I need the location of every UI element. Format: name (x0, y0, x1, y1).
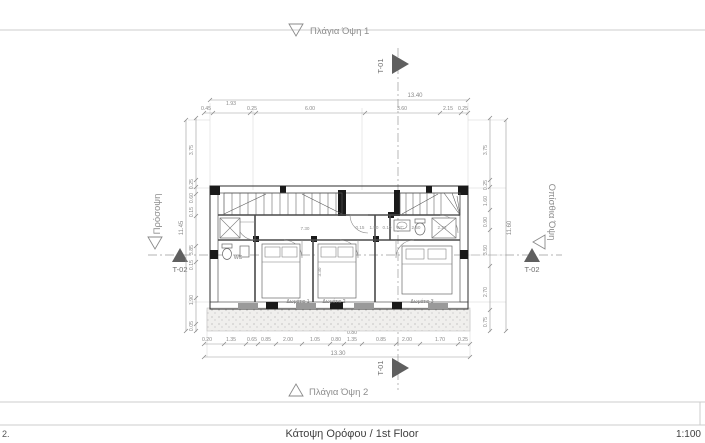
dim-int-6: 3.30 (317, 267, 322, 276)
floor-plan: 7.30 0.15 1.50 0.10 WC 2.50 2.23 3.30 Δω… (207, 186, 470, 331)
dim-right-5: 2.70 (483, 287, 489, 297)
bed-bedroom1 (262, 244, 300, 298)
section-label-t02-right: T-02 (524, 265, 539, 274)
dim-right-0: 3.75 (483, 145, 489, 155)
title-block: 2. Κάτοψη Ορόφου / 1st Floor 1:100 (2, 428, 701, 440)
dim-left-3: 0.15 (189, 207, 195, 217)
dim-int-2: 1.50 (370, 225, 379, 230)
dim-top-5: 2.15 (443, 106, 453, 112)
dim-top-6: 0.25 (458, 106, 468, 112)
section-arrow-t01-top-icon (392, 54, 409, 74)
floor-plan-sheet: Πλάγια Όψη 1 Πλάγια Όψη 2 Πρόσοψη Οπίσθι… (0, 0, 705, 443)
dim-bottom-3: 0.85 (261, 337, 271, 343)
dim-right-3: 0.90 (483, 217, 489, 227)
dim-left-2: 0.60 (189, 193, 195, 203)
room-label-bedroom2: Δωμάτιο 2 (322, 298, 345, 305)
dim-top-0: 0.45 (201, 106, 211, 112)
dim-left-1: 0.25 (189, 179, 195, 189)
room-label-bedroom3: Δωμάτιο 3 (410, 298, 433, 305)
dim-left: 3.75 0.25 0.60 0.15 3.85 0.15 1.90 0.05 … (179, 116, 198, 333)
dim-bottom-0: 0.20 (202, 337, 212, 343)
dim-int-3: 0.10 (383, 225, 392, 230)
view-label-top: Πλάγια Όψη 1 (310, 26, 369, 37)
dim-bottom-7: 1.35 (347, 337, 357, 343)
dim-top-1: 1.93 (226, 101, 236, 107)
dim-bottom-11: 0.25 (458, 337, 468, 343)
view-triangle-right-icon (533, 235, 545, 249)
dim-bottom-10: 1.70 (435, 337, 445, 343)
room-label-bedroom1: Δωμάτιο 1 (286, 298, 309, 305)
dim-right-1: 0.25 (483, 180, 489, 190)
view-triangle-bottom-icon (289, 384, 303, 396)
view-triangle-left-icon (148, 237, 162, 249)
dim-top-2: 0.25 (247, 106, 257, 112)
dim-left-7: 0.05 (189, 321, 195, 331)
dim-top-3: 6.00 (305, 106, 315, 112)
dim-right-6: 0.75 (483, 317, 489, 327)
bed-bedroom3 (402, 246, 452, 294)
dim-bottom-9: 2.00 (402, 337, 412, 343)
bed-bedroom2 (318, 244, 356, 298)
dim-top: 13.40 0.45 1.93 0.25 6.00 3.60 2.15 0.25 (201, 93, 470, 115)
terrace-band (207, 308, 470, 331)
dim-bottom-2: 0.65 (247, 337, 257, 343)
drawing-scale: 1:100 (676, 429, 701, 440)
dim-bottom-1: 1.35 (226, 337, 236, 343)
dim-right: 3.75 0.25 1.60 0.90 3.50 2.70 0.75 11.60 (483, 116, 513, 333)
view-label-bottom: Πλάγια Όψη 2 (309, 387, 368, 398)
sheet-number: 2. (2, 429, 10, 439)
dim-int-0: 7.30 (301, 226, 310, 231)
sheet-frame (0, 30, 705, 425)
dim-bottom-4: 2.00 (283, 337, 293, 343)
dim-left-4: 3.85 (189, 245, 195, 255)
dim-left-5: 0.15 (189, 260, 195, 270)
dim-bottom-5: 1.05 (310, 337, 320, 343)
dim-left-overall: 11.45 (179, 220, 185, 235)
dim-bottom-8: 0.85 (376, 337, 386, 343)
wc-right-label: WC (396, 225, 404, 230)
wc-left-fixtures (220, 218, 249, 260)
dim-top-overall: 13.40 (407, 93, 423, 99)
dim-right-4: 3.50 (483, 245, 489, 255)
dim-right-overall: 11.60 (507, 220, 513, 235)
dim-left-6: 1.90 (189, 295, 195, 305)
section-label-t01-top: T-01 (376, 58, 385, 73)
dim-int-5: 2.23 (438, 225, 447, 230)
dim-left-0: 3.75 (189, 145, 195, 155)
stairs (224, 193, 460, 215)
drawing-title: Κάτοψη Ορόφου / 1st Floor (285, 428, 418, 440)
dim-int-1: 0.15 (356, 225, 365, 230)
section-arrow-t01-bottom-icon (392, 358, 409, 378)
dim-bottom: 0.20 1.35 0.65 0.85 2.00 1.05 0.80 1.35 … (202, 330, 472, 359)
dim-bottom-6: 0.80 (331, 337, 341, 343)
dim-right-2: 1.60 (483, 196, 489, 206)
dim-bottom-overall: 13.30 (330, 351, 346, 357)
view-label-left: Πρόσοψη (152, 194, 163, 235)
dim-int-4: 2.50 (412, 225, 421, 230)
room-label-wc: WC (234, 255, 243, 261)
dim-top-4: 3.60 (397, 106, 407, 112)
section-label-t01-bottom: T-01 (376, 360, 385, 375)
section-label-t02-left: T-02 (172, 265, 187, 274)
view-label-right: Οπίσθια Όψη (546, 184, 557, 241)
